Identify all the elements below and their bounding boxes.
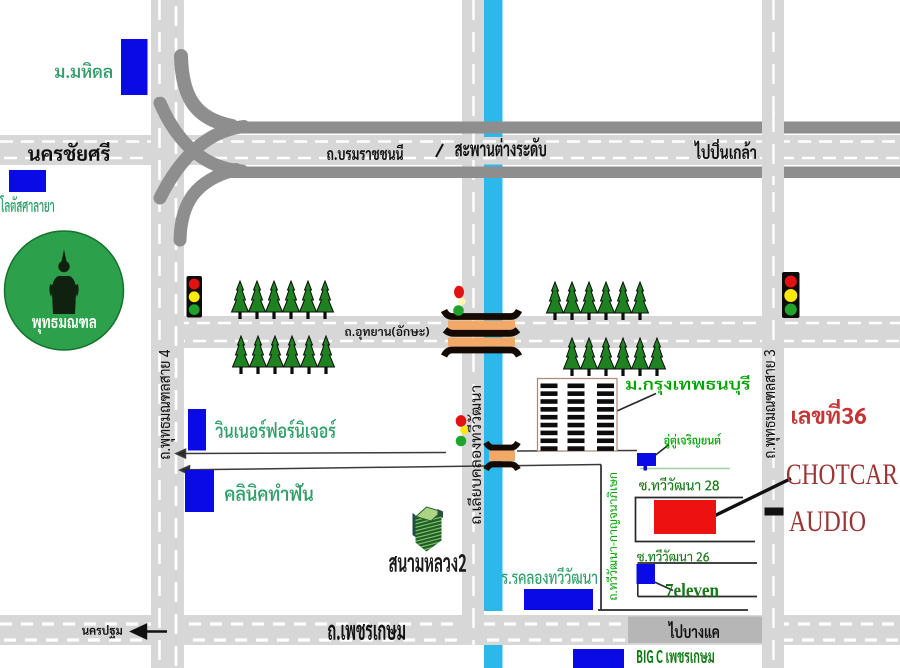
svg-text:AUDIO: AUDIO	[789, 505, 866, 538]
svg-text:CHOTCAR: CHOTCAR	[786, 458, 898, 491]
svg-text:7eleven: 7eleven	[665, 581, 719, 602]
